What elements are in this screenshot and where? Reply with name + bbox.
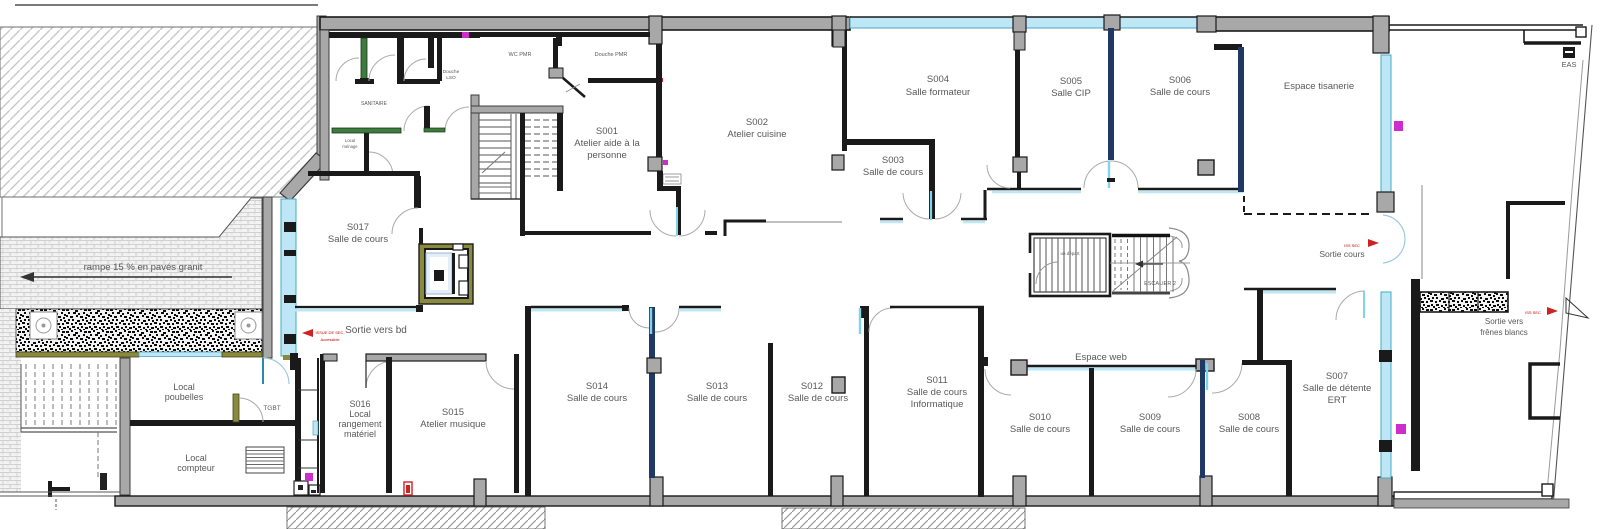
svg-text:S011: S011 [926, 375, 947, 386]
svg-text:S002: S002 [746, 117, 768, 128]
svg-text:Accessible: Accessible [320, 337, 340, 342]
svg-text:Salle de détente: Salle de détente [1303, 383, 1372, 394]
svg-text:Salle formateur: Salle formateur [906, 87, 970, 98]
svg-text:SANITAIRE: SANITAIRE [361, 101, 388, 107]
svg-text:S017: S017 [347, 222, 369, 233]
svg-text:Sortie vers bd: Sortie vers bd [345, 325, 407, 336]
svg-text:Salle de cours: Salle de cours [1120, 424, 1180, 435]
svg-text:Sortie cours: Sortie cours [1319, 249, 1364, 259]
svg-text:S006: S006 [1169, 75, 1191, 86]
svg-text:S008: S008 [1238, 412, 1260, 423]
svg-text:Salle de cours: Salle de cours [1150, 87, 1210, 98]
svg-text:ISS SEC: ISS SEC [1525, 310, 1541, 315]
svg-text:Sortie vers: Sortie vers [1485, 317, 1523, 326]
svg-text:Local: Local [173, 382, 195, 392]
svg-text:S015: S015 [442, 407, 464, 418]
svg-text:ISS SEC: ISS SEC [1344, 243, 1360, 248]
svg-text:poubelles: poubelles [165, 392, 204, 402]
svg-text:matériel: matériel [344, 429, 376, 439]
svg-text:rangement: rangement [338, 419, 382, 429]
svg-text:Informatique: Informatique [911, 399, 964, 410]
svg-text:Atelier cuisine: Atelier cuisine [727, 129, 786, 140]
svg-text:Salle de cours: Salle de cours [788, 393, 848, 404]
svg-text:S009: S009 [1139, 412, 1161, 423]
svg-text:S010: S010 [1029, 412, 1051, 423]
svg-text:Salle de cours: Salle de cours [567, 393, 627, 404]
svg-text:WC PMR: WC PMR [509, 52, 532, 58]
svg-text:Espace web: Espace web [1075, 352, 1127, 363]
svg-text:Espace tisanerie: Espace tisanerie [1284, 81, 1354, 92]
svg-text:S003: S003 [882, 155, 904, 166]
svg-text:ménage: ménage [342, 144, 358, 149]
svg-text:S005: S005 [1060, 76, 1082, 87]
svg-text:ISSUE DE SEC.: ISSUE DE SEC. [315, 330, 344, 335]
svg-text:Local: Local [345, 138, 355, 143]
svg-text:TGBT: TGBT [263, 405, 280, 412]
svg-text:personne: personne [587, 150, 627, 161]
svg-text:S013: S013 [706, 381, 728, 392]
svg-text:Salle de cours: Salle de cours [1010, 424, 1070, 435]
svg-text:ERT: ERT [1328, 395, 1347, 406]
svg-text:Salle de cours: Salle de cours [328, 234, 388, 245]
svg-text:Salle de cours: Salle de cours [1219, 424, 1279, 435]
svg-text:Douche: Douche [443, 69, 460, 75]
svg-text:S016: S016 [349, 399, 370, 409]
svg-text:un départ: un départ [1060, 251, 1080, 256]
svg-text:LSO: LSO [446, 75, 456, 81]
svg-text:EAS: EAS [1561, 60, 1576, 69]
svg-text:S012: S012 [801, 381, 823, 392]
svg-text:compteur: compteur [177, 463, 215, 473]
svg-text:frênes blancs: frênes blancs [1480, 328, 1528, 337]
svg-text:S014: S014 [586, 381, 608, 392]
svg-text:S001: S001 [596, 126, 618, 137]
svg-text:Atelier musique: Atelier musique [420, 419, 485, 430]
svg-text:Local: Local [349, 409, 371, 419]
svg-text:ESCALIER 2: ESCALIER 2 [1144, 281, 1176, 287]
svg-text:Atelier aide à la: Atelier aide à la [574, 138, 640, 149]
svg-text:Salle de cours: Salle de cours [863, 167, 923, 178]
svg-text:S004: S004 [927, 74, 949, 85]
svg-text:Salle CIP: Salle CIP [1051, 88, 1091, 99]
svg-text:Salle de cours: Salle de cours [907, 387, 967, 398]
svg-text:S007: S007 [1326, 371, 1348, 382]
svg-text:Salle de cours: Salle de cours [687, 393, 747, 404]
svg-text:rampe 15 % en pavés granit: rampe 15 % en pavés granit [84, 262, 203, 273]
svg-text:Douche PMR: Douche PMR [595, 52, 628, 58]
svg-text:Local: Local [185, 453, 207, 463]
